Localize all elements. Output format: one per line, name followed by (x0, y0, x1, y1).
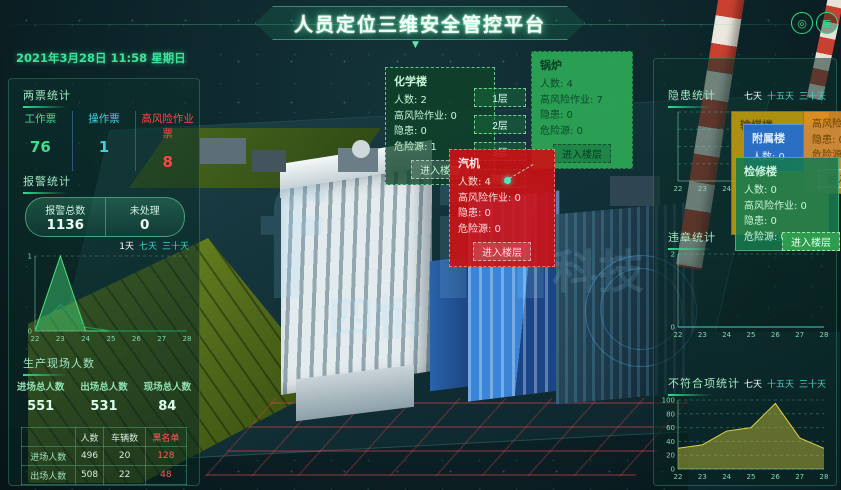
table-header-cell: 车辆数 (104, 428, 145, 447)
svg-text:27: 27 (795, 473, 804, 481)
table-cell: 出场人数 (22, 466, 76, 485)
tickets-section-title: 两票统计 (23, 87, 71, 108)
svg-text:25: 25 (747, 473, 756, 481)
stat-label: 操作票 (73, 111, 136, 126)
svg-text:27: 27 (157, 335, 166, 343)
banner-caret-icon: ▼ (412, 40, 419, 50)
turbine-building-popup[interactable]: 汽机 人数: 4高风险作业: 0隐患: 0危险源: 0 进入楼层 (449, 149, 555, 267)
entered-total-stat: 进场总人数 551 (9, 379, 72, 414)
popup-stat-line: 高风险作业: 7 (540, 93, 624, 109)
popup-stat-line: 隐患: 0 (812, 133, 841, 149)
hazards-section-title: 隐患统计 (668, 87, 716, 108)
svg-text:24: 24 (81, 335, 90, 343)
site-people-table: 人数车辆数黑名单进场人数49620128出场人数5082248 (21, 427, 187, 485)
svg-text:23: 23 (698, 185, 707, 193)
svg-text:2: 2 (671, 251, 675, 259)
stat-label: 未处理 (130, 202, 160, 217)
hazards-range-tabs: 七天十五天三十天 (739, 89, 826, 102)
svg-text:22: 22 (674, 331, 683, 339)
enter-floor-button[interactable]: 进入楼层 (553, 144, 611, 163)
table-cell: 20 (104, 447, 145, 466)
stat-label: 进场总人数 (9, 379, 72, 393)
app-root: f il 四相 科技 人员定位三维安全管控平台 ▼ 2021年3月28日 11:… (0, 0, 841, 490)
popup-stat-line: 隐患: 0 (458, 206, 546, 222)
popup-stat-line: 高风险作业: 0 (812, 117, 841, 133)
stat-label: 出场总人数 (72, 379, 135, 393)
svg-text:23: 23 (56, 335, 65, 343)
range-tab[interactable]: 三十天 (799, 92, 826, 102)
violations-section-title: 违章统计 (668, 229, 716, 250)
range-tab[interactable]: 七天 (744, 380, 762, 390)
stat-value: 8 (136, 153, 199, 171)
small-building (252, 150, 286, 172)
svg-text:26: 26 (132, 335, 141, 343)
popup-stat-line: 高风险作业: 0 (394, 109, 486, 125)
range-tab[interactable]: 十五天 (767, 92, 794, 102)
popup-title: 检修楼 (744, 163, 830, 180)
operation-ticket-stat: 操作票 1 (72, 111, 136, 171)
table-row: 出场人数5082248 (22, 466, 187, 485)
storage-tank (352, 140, 370, 158)
svg-text:22: 22 (674, 473, 683, 481)
exit-icon[interactable]: ≣ (816, 12, 838, 34)
svg-text:28: 28 (820, 331, 829, 339)
floor-button[interactable]: 2层 (474, 115, 526, 134)
chart-canvas: 0122232425262728 (17, 251, 193, 343)
turbine-hall-building (281, 166, 432, 395)
table-cell: 508 (75, 466, 104, 485)
table-header-cell: 人数 (75, 428, 104, 447)
badge-icon[interactable]: ◎ (791, 12, 813, 34)
small-building (200, 138, 246, 164)
table-cell: 22 (104, 466, 145, 485)
popup-stat-line: 人数: 0 (744, 183, 830, 199)
popup-stat-line: 高风险作业: 0 (744, 199, 830, 215)
svg-text:60: 60 (666, 424, 675, 432)
table-cell: 496 (75, 447, 104, 466)
svg-text:25: 25 (747, 331, 756, 339)
stat-value: 1136 (46, 217, 84, 233)
table-header-cell: 黑名单 (145, 428, 186, 447)
stat-label: 高风险作业票 (136, 111, 199, 141)
range-tab[interactable]: 十五天 (767, 380, 794, 390)
table-row: 进场人数49620128 (22, 447, 187, 466)
svg-text:28: 28 (183, 335, 192, 343)
svg-text:25: 25 (107, 335, 116, 343)
table-cell: 进场人数 (22, 447, 76, 466)
popup-stat-line: 人数: 4 (540, 77, 624, 93)
svg-text:22: 22 (674, 185, 683, 193)
enter-floor-button[interactable]: 进入楼层 (473, 242, 531, 261)
svg-text:1: 1 (28, 253, 32, 261)
stat-value: 551 (9, 399, 72, 414)
range-tab[interactable]: 三十天 (799, 380, 826, 390)
violations-chart: 0222232425262728 (660, 249, 830, 339)
enter-floor-button[interactable]: 进入楼层 (782, 232, 840, 251)
stat-value: 1 (73, 138, 136, 156)
chart-canvas: 0222232425262728 (660, 249, 830, 339)
popup-title: 锅炉 (540, 57, 624, 74)
svg-text:27: 27 (795, 331, 804, 339)
svg-text:40: 40 (666, 438, 675, 446)
svg-text:100: 100 (662, 397, 675, 405)
site-stats-row: 进场总人数 551 出场总人数 531 现场总人数 84 (9, 379, 199, 414)
stat-value: 84 (136, 399, 199, 414)
stat-value: 531 (72, 399, 135, 414)
popup-stat-line: 人数: 2 (394, 93, 486, 109)
nonconformance-chart: 02040608010022232425262728 (660, 395, 830, 481)
nonconformance-section-title: 不符合项统计 (668, 375, 740, 396)
svg-text:26: 26 (771, 331, 780, 339)
popup-stat-line: 危险源: 0 (458, 222, 546, 238)
svg-text:20: 20 (666, 452, 675, 460)
left-stats-panel: 两票统计 工作票 76 操作票 1 高风险作业票 8 报警统计 报警总数 113… (8, 78, 200, 486)
alarm-trend-chart: 0122232425262728 (17, 251, 193, 343)
table-cell: 48 (145, 466, 186, 485)
popup-stat-line: 隐患: 0 (540, 108, 624, 124)
datetime-label: 2021年3月28日 11:58 星期日 (16, 50, 186, 66)
svg-text:26: 26 (771, 473, 780, 481)
svg-text:23: 23 (698, 473, 707, 481)
table-header-cell (22, 428, 76, 447)
popup-stat-line: 高风险作业: 0 (458, 191, 546, 207)
popup-stat-line: 危险源: 0 (540, 124, 624, 140)
popup-stat-line: 人数: 4 (458, 175, 546, 191)
svg-text:80: 80 (666, 410, 675, 418)
alarms-section-title: 报警统计 (23, 173, 71, 194)
stat-value: 0 (140, 217, 149, 233)
exited-total-stat: 出场总人数 531 (72, 379, 135, 414)
stat-value: 76 (9, 138, 72, 156)
nonconformance-range-tabs: 七天十五天三十天 (739, 377, 826, 390)
page-title: 人员定位三维安全管控平台 (255, 6, 585, 40)
svg-text:24: 24 (722, 473, 731, 481)
alarm-pending: 未处理 0 (105, 198, 185, 236)
data-table: 人数车辆数黑名单进场人数49620128出场人数5082248 (21, 427, 187, 485)
high-risk-ticket-stat: 高风险作业票 8 (135, 111, 199, 171)
alarm-total: 报警总数 1136 (26, 198, 105, 236)
alarm-summary-pill: 报警总数 1136 未处理 0 (25, 197, 185, 237)
stat-label: 现场总人数 (136, 379, 199, 393)
chart-canvas: 02040608010022232425262728 (660, 395, 830, 481)
work-ticket-stat: 工作票 76 (9, 111, 72, 171)
svg-text:22: 22 (31, 335, 40, 343)
table-cell: 128 (145, 447, 186, 466)
scene-road-grid (205, 398, 705, 476)
popup-stat-line: 隐患: 0 (394, 124, 486, 140)
svg-text:23: 23 (698, 331, 707, 339)
site-section-title: 生产现场人数 (23, 355, 95, 376)
floor-button[interactable]: 1层 (474, 88, 526, 107)
range-tab[interactable]: 七天 (744, 92, 762, 102)
onsite-total-stat: 现场总人数 84 (136, 379, 199, 414)
svg-text:24: 24 (722, 331, 731, 339)
popup-title: 化学楼 (394, 73, 486, 90)
svg-text:28: 28 (820, 473, 829, 481)
stat-label: 工作票 (9, 111, 72, 126)
stat-label: 报警总数 (45, 202, 85, 217)
popup-stat-line: 隐患: 0 (744, 214, 830, 230)
tickets-row: 工作票 76 操作票 1 高风险作业票 8 (9, 111, 199, 171)
